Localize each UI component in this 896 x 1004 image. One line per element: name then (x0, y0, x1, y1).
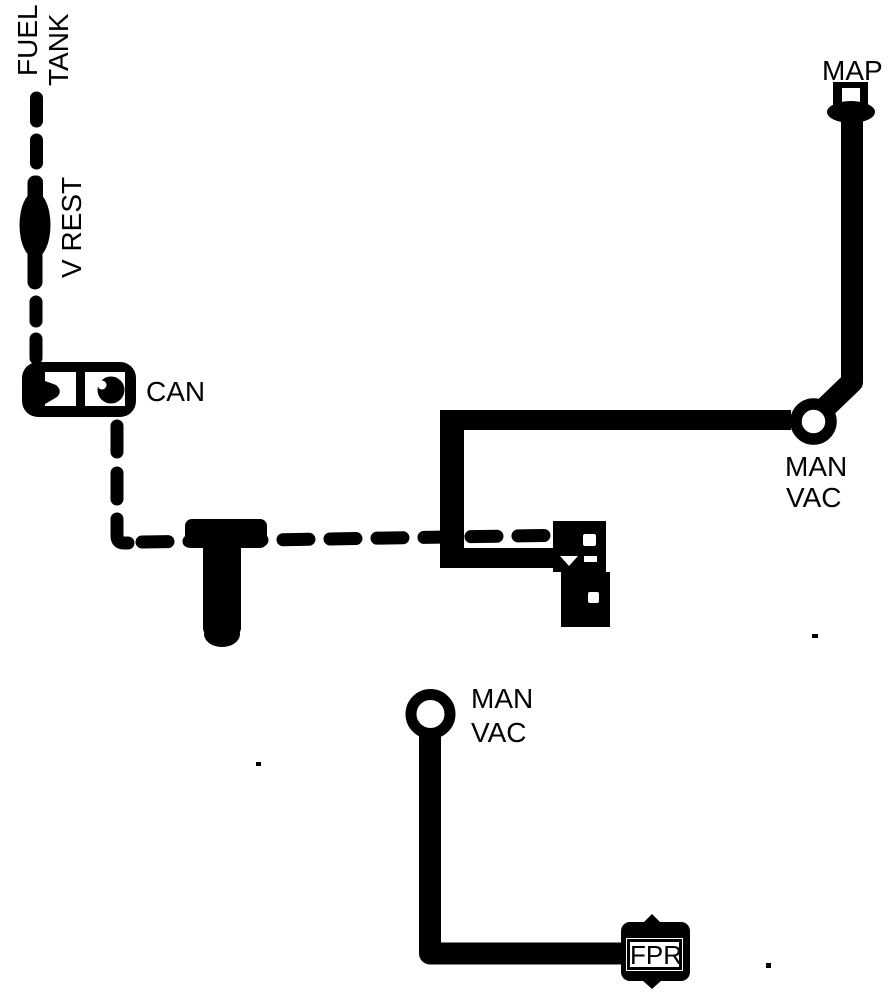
svg-text:VAC: VAC (786, 482, 842, 513)
svg-text:FUEL: FUEL (12, 4, 43, 76)
svg-text:TANK: TANK (43, 13, 74, 86)
svg-text:V REST: V REST (56, 177, 87, 278)
svg-text:FPR: FPR (630, 940, 682, 970)
svg-text:MAN: MAN (785, 451, 847, 482)
svg-text:CAN: CAN (146, 376, 205, 407)
svg-text:MAP: MAP (822, 55, 883, 86)
svg-text:MAN: MAN (471, 683, 533, 714)
svg-text:VAC: VAC (471, 717, 527, 748)
